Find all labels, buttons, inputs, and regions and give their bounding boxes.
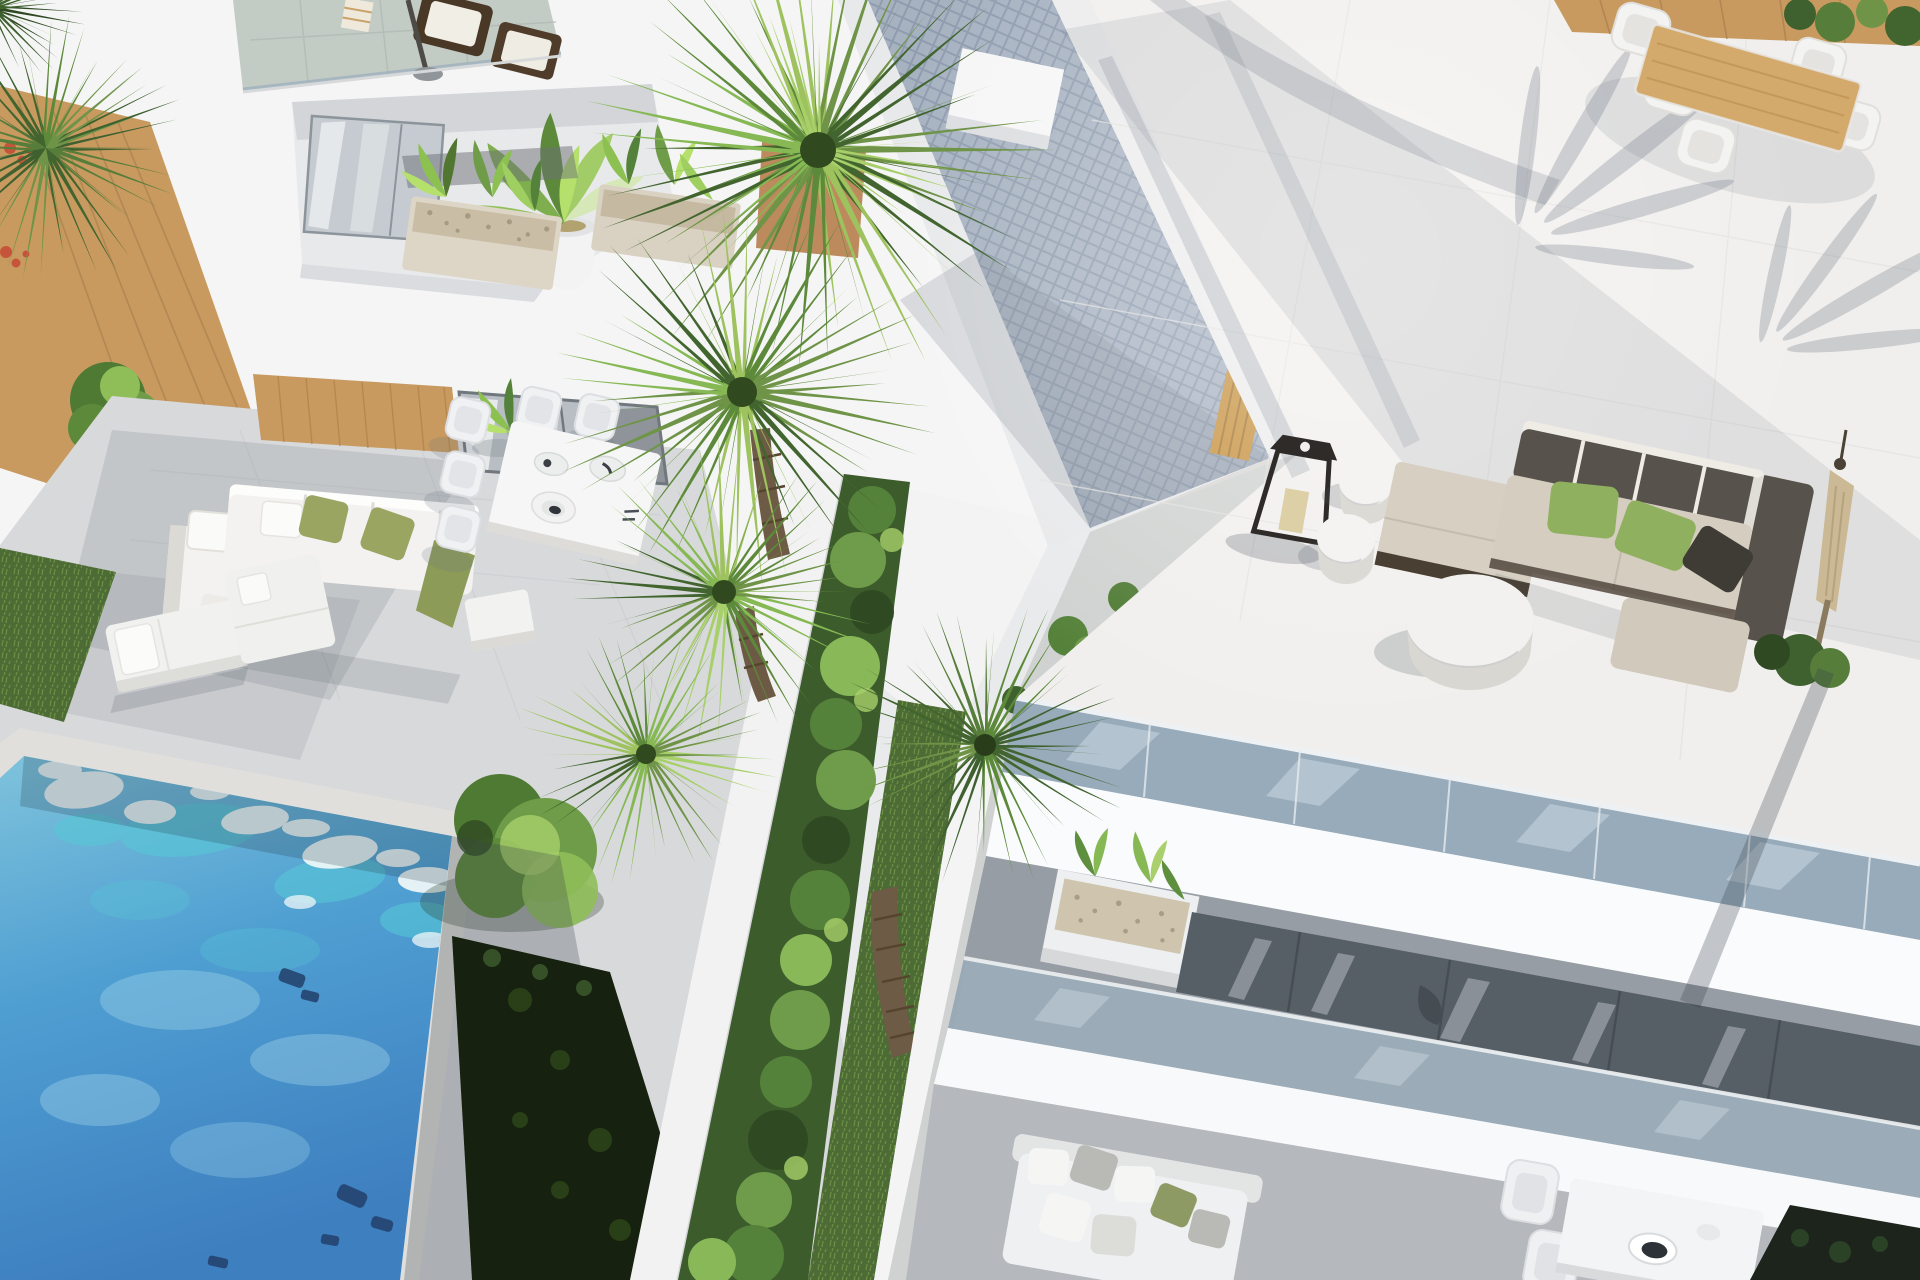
render-image: Aerial 3D architectural render of modern…: [0, 0, 1920, 1280]
white-cube-seat: [464, 589, 536, 651]
towel-stack: [341, 0, 374, 32]
sun-lounger: [223, 553, 336, 665]
swimming-pool: [0, 744, 462, 1280]
aerial-render: Aerial 3D architectural render of modern…: [0, 0, 1920, 1280]
